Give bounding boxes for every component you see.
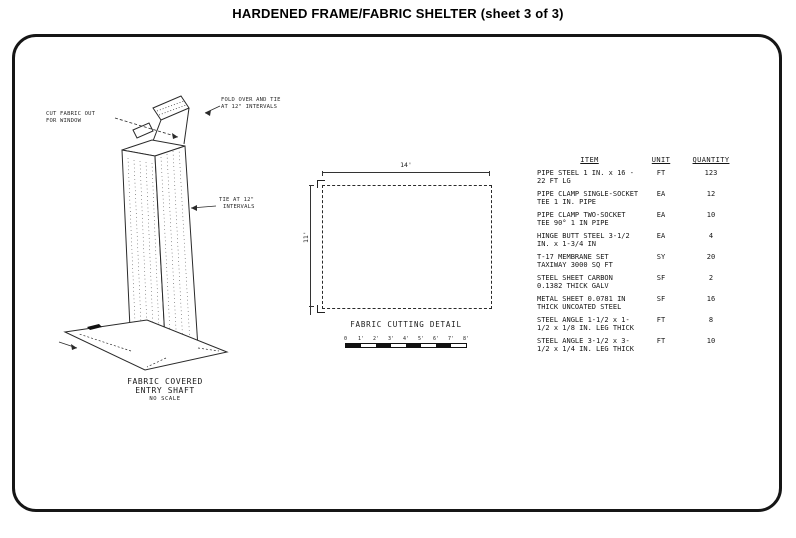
table-row: PIPE CLAMP SINGLE-SOCKET TEE 1 IN. PIPE …	[537, 190, 752, 206]
table-row: PIPE CLAMP TWO-SOCKET TEE 90° 1 IN PIPE …	[537, 211, 752, 227]
scale-tick-label: 6'	[433, 336, 439, 342]
header-unit: UNIT	[642, 156, 680, 164]
item-cell: T-17 MEMBRANE SET TAXIWAY 3000 SQ FT	[537, 253, 642, 269]
table-row: PIPE STEEL 1 IN. x 16 - 22 FT LG FT 123	[537, 169, 752, 185]
page-title: HARDENED FRAME/FABRIC SHELTER (sheet 3 o…	[0, 6, 796, 21]
scale-tick-label: 5'	[418, 336, 424, 342]
unit-cell: EA	[642, 211, 680, 227]
dim-tick	[322, 171, 323, 176]
table-row: METAL SHEET 0.0781 IN THICK UNCOATED STE…	[537, 295, 752, 311]
scale-tick-label: 1'	[358, 336, 364, 342]
graphic-scale: 0 1' 2' 3' 4' 5' 6' 7' 8'	[345, 336, 467, 348]
unit-cell: SF	[642, 274, 680, 290]
height-dimension-line	[310, 185, 311, 315]
cutting-detail-caption: FABRIC CUTTING DETAIL	[300, 320, 512, 329]
scale-tick-label: 4'	[403, 336, 409, 342]
quantity-cell: 8	[680, 316, 742, 332]
width-dimension-line	[322, 172, 490, 173]
fabric-cutting-detail: 14' 11' FABRIC CUTTING DETAIL 0 1' 2' 3'…	[300, 158, 512, 363]
item-cell: HINGE BUTT STEEL 3-1/2 IN. x 1-3/4 IN	[537, 232, 642, 248]
callout-cut-fabric: CUT FABRIC OUT FOR WINDOW	[46, 111, 95, 124]
unit-cell: SY	[642, 253, 680, 269]
quantity-cell: 10	[680, 211, 742, 227]
scale-tick-label: 8'	[463, 336, 469, 342]
entry-shaft-caption: FABRIC COVERED ENTRY SHAFT NO SCALE	[100, 377, 230, 403]
quantity-cell: 12	[680, 190, 742, 206]
table-row: STEEL SHEET CARBON 0.1382 THICK GALV SF …	[537, 274, 752, 290]
quantity-cell: 16	[680, 295, 742, 311]
scale-segment	[361, 344, 376, 347]
caption-line2: ENTRY SHAFT	[100, 386, 230, 395]
callout-tie-line2: INTERVALS	[219, 204, 255, 211]
scale-segment	[406, 344, 421, 347]
entry-shaft-drawing	[35, 80, 255, 390]
unit-cell: EA	[642, 190, 680, 206]
quantity-cell: 10	[680, 337, 742, 353]
shaft-top-flaps	[133, 96, 189, 144]
table-row: HINGE BUTT STEEL 3-1/2 IN. x 1-3/4 IN EA…	[537, 232, 752, 248]
corner-tick	[317, 180, 325, 188]
width-dimension-label: 14'	[322, 161, 490, 169]
quantity-cell: 20	[680, 253, 742, 269]
item-cell: STEEL ANGLE 1-1/2 x 1-1/2 x 1/8 IN. LEG …	[537, 316, 642, 332]
quantity-cell: 4	[680, 232, 742, 248]
table-row: STEEL ANGLE 1-1/2 x 1-1/2 x 1/8 IN. LEG …	[537, 316, 752, 332]
scale-segment	[376, 344, 391, 347]
unit-cell: FT	[642, 169, 680, 185]
scale-segment	[436, 344, 451, 347]
scale-tick-label: 0	[344, 336, 347, 342]
fabric-outline	[322, 185, 492, 309]
callout-cut-line2: FOR WINDOW	[46, 118, 95, 125]
callout-tie-intervals: TIE AT 12" INTERVALS	[219, 197, 255, 210]
caption-no-scale: NO SCALE	[100, 395, 230, 403]
dim-tick	[309, 306, 314, 307]
scale-tick-label: 2'	[373, 336, 379, 342]
scale-segment	[391, 344, 406, 347]
item-cell: PIPE CLAMP SINGLE-SOCKET TEE 1 IN. PIPE	[537, 190, 642, 206]
dim-tick	[489, 171, 490, 176]
unit-cell: SF	[642, 295, 680, 311]
callout-fold-over: FOLD OVER AND TIE AT 12" INTERVALS	[221, 97, 281, 110]
scale-segment	[421, 344, 436, 347]
table-row: T-17 MEMBRANE SET TAXIWAY 3000 SQ FT SY …	[537, 253, 752, 269]
quantity-cell: 2	[680, 274, 742, 290]
table-row: STEEL ANGLE 3-1/2 x 3-1/2 x 1/4 IN. LEG …	[537, 337, 752, 353]
height-dimension-label: 11'	[302, 231, 310, 243]
item-cell: PIPE STEEL 1 IN. x 16 - 22 FT LG	[537, 169, 642, 185]
header-item: ITEM	[537, 156, 642, 164]
quantity-cell: 123	[680, 169, 742, 185]
callout-tie-line1: TIE AT 12"	[219, 197, 255, 204]
unit-cell: FT	[642, 316, 680, 332]
scale-bar	[345, 343, 467, 348]
corner-tick	[317, 305, 325, 313]
callout-cut-line1: CUT FABRIC OUT	[46, 111, 95, 118]
callout-fold-line2: AT 12" INTERVALS	[221, 104, 281, 111]
scale-segment	[346, 344, 361, 347]
unit-cell: EA	[642, 232, 680, 248]
header-quantity: QUANTITY	[680, 156, 742, 164]
item-cell: METAL SHEET 0.0781 IN THICK UNCOATED STE…	[537, 295, 642, 311]
scale-segment	[451, 344, 466, 347]
parts-table: ITEM UNIT QUANTITY PIPE STEEL 1 IN. x 16…	[537, 156, 752, 353]
drawing-page: HARDENED FRAME/FABRIC SHELTER (sheet 3 o…	[0, 0, 796, 538]
shaft-base-plate	[65, 320, 227, 370]
dim-tick	[309, 185, 314, 186]
caption-line1: FABRIC COVERED	[100, 377, 230, 386]
callout-fold-line1: FOLD OVER AND TIE	[221, 97, 281, 104]
unit-cell: FT	[642, 337, 680, 353]
item-cell: STEEL ANGLE 3-1/2 x 3-1/2 x 1/4 IN. LEG …	[537, 337, 642, 353]
item-cell: PIPE CLAMP TWO-SOCKET TEE 90° 1 IN PIPE	[537, 211, 642, 227]
scale-tick-label: 3'	[388, 336, 394, 342]
table-header: ITEM UNIT QUANTITY	[537, 156, 752, 164]
scale-tick-label: 7'	[448, 336, 454, 342]
item-cell: STEEL SHEET CARBON 0.1382 THICK GALV	[537, 274, 642, 290]
